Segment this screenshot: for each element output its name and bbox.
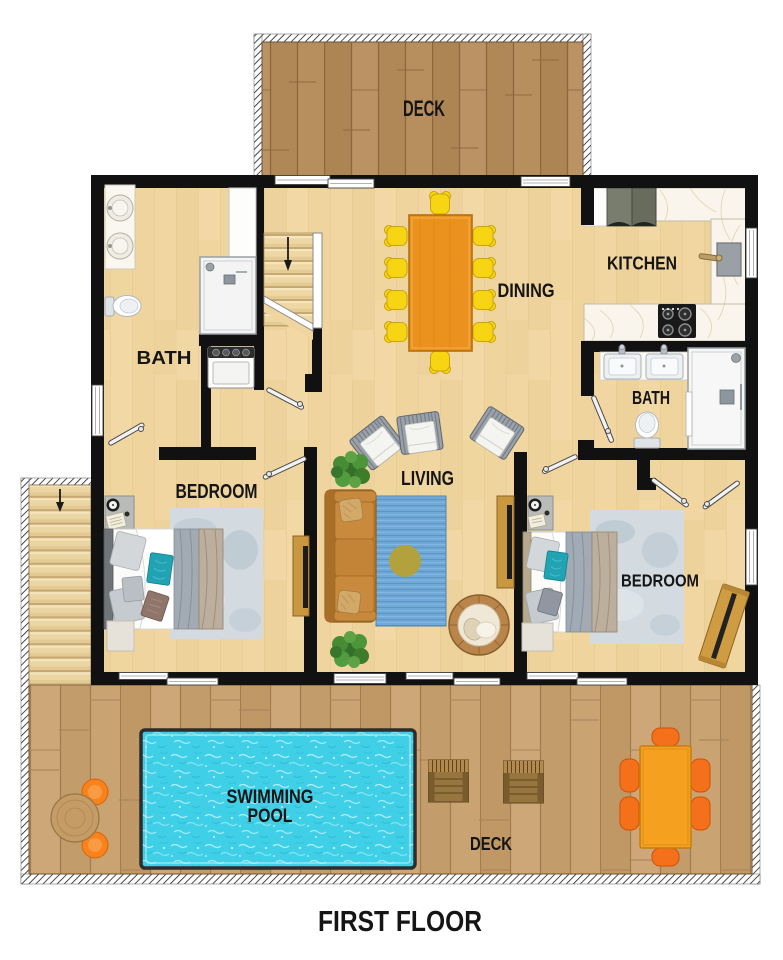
svg-text:DECK: DECK xyxy=(470,833,513,854)
svg-text:BATH: BATH xyxy=(632,388,670,408)
svg-text:BEDROOM: BEDROOM xyxy=(176,480,258,503)
svg-text:SWIMMING: SWIMMING xyxy=(227,787,314,808)
svg-text:LIVING: LIVING xyxy=(401,467,454,490)
svg-text:BATH: BATH xyxy=(137,347,192,368)
svg-text:KITCHEN: KITCHEN xyxy=(607,254,677,274)
svg-text:DINING: DINING xyxy=(498,280,555,302)
svg-text:POOL: POOL xyxy=(248,806,293,827)
svg-text:FIRST FLOOR: FIRST FLOOR xyxy=(318,906,482,938)
svg-text:DECK: DECK xyxy=(403,96,445,121)
svg-text:BEDROOM: BEDROOM xyxy=(621,571,699,591)
